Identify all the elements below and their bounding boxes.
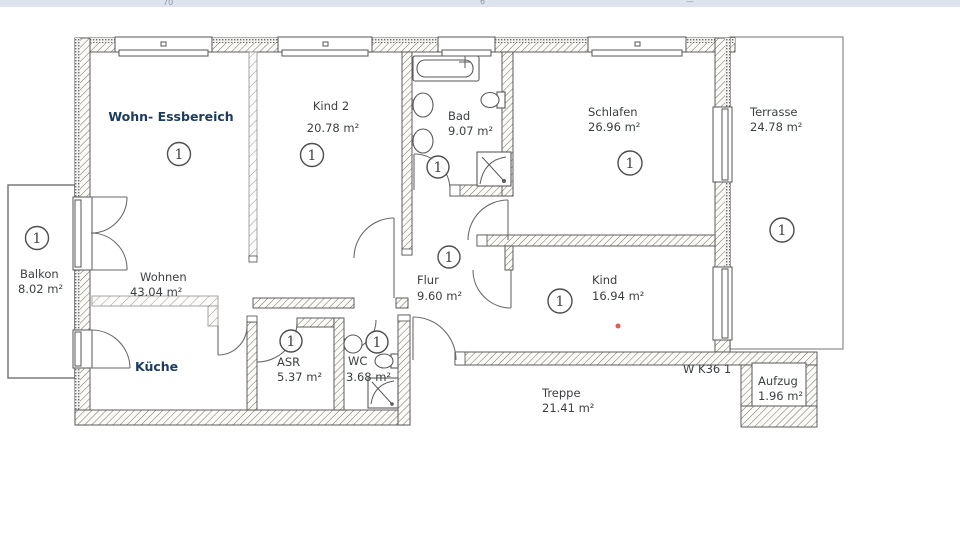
position-marker: 1 (280, 330, 302, 352)
room-area-treppe: 21.41 m² (542, 401, 594, 415)
sink-icon (412, 129, 433, 153)
wall-end-cap (249, 256, 257, 262)
wall-segment (297, 318, 334, 327)
room-label-balkon: Balkon (20, 267, 59, 281)
partition-wall (249, 52, 257, 258)
room-area-kind2: 20.78 m² (307, 121, 359, 135)
wall-end-cap (402, 249, 412, 255)
position-marker: 1 (168, 143, 191, 166)
svg-text:1: 1 (373, 335, 382, 351)
svg-text:1: 1 (175, 147, 184, 163)
room-label-bad: Bad (448, 109, 470, 123)
room-label-kueche: Küche (135, 359, 178, 374)
room-area-bad: 9.07 m² (448, 124, 493, 138)
room-label-wc: WC (348, 354, 367, 368)
insulation-band (75, 38, 80, 197)
top-fragment: 6 (480, 0, 485, 6)
room-label-terrasse: Terrasse (749, 105, 798, 119)
entry-door (413, 317, 456, 360)
insulation-band (725, 182, 730, 267)
floor-plan-drawing: 70 6 — (0, 0, 960, 542)
toilet-icon (481, 92, 505, 108)
top-fragment: 70 (163, 0, 173, 7)
wall-segment (402, 52, 412, 255)
room-area-schlafen: 26.96 m² (588, 120, 640, 134)
floor-plan-page: 70 6 — (0, 0, 960, 542)
insulation-band (372, 38, 438, 43)
position-marker: 1 (438, 246, 460, 268)
window-icon (278, 37, 372, 56)
svg-text:1: 1 (434, 160, 443, 176)
room-area-wohnen: 43.04 m² (130, 285, 182, 299)
svg-text:1: 1 (556, 294, 565, 310)
svg-text:1: 1 (626, 156, 635, 172)
wall-segment (806, 365, 817, 406)
wall-segment (75, 410, 410, 425)
room-label-aufzug: Aufzug (758, 374, 798, 388)
room-label-kind2: Kind 2 (313, 99, 349, 113)
window-icon (588, 37, 686, 56)
terrace-door-opening (713, 107, 732, 182)
room-area-aufzug: 1.96 m² (758, 389, 803, 403)
balcony-door-opening (73, 197, 92, 270)
position-marker: 1 (26, 227, 49, 250)
wall-segment (741, 365, 752, 406)
wall-segment (398, 315, 410, 425)
kueche-door (218, 326, 247, 355)
unit-number-label: W K36 1 (683, 362, 731, 376)
sink-icon (344, 335, 362, 353)
toilet-icon (375, 354, 398, 368)
insulation-band (725, 38, 730, 107)
position-marker: 1 (427, 156, 449, 178)
position-marker: 1 (301, 144, 324, 167)
room-area-wc: 3.68 m² (346, 370, 391, 384)
kind-door (473, 270, 511, 308)
kitchen-balcony-door-opening (73, 330, 92, 368)
insulation-band (75, 270, 80, 330)
wall-segment (715, 340, 730, 352)
wall-end-cap (450, 185, 460, 196)
room-label-flur: Flur (417, 273, 439, 287)
kitchen-balcony-door (91, 330, 130, 368)
wall-segment (505, 246, 513, 270)
svg-text:1: 1 (33, 231, 42, 247)
red-annotation-dot (616, 324, 621, 329)
room-area-terrasse: 24.78 m² (750, 120, 802, 134)
position-marker: 1 (618, 151, 642, 175)
schlafen-door (468, 200, 508, 240)
bathtub-icon (413, 56, 479, 81)
wall-segment (741, 406, 817, 427)
window-icon (438, 37, 495, 56)
terrace-outline (730, 37, 843, 349)
terrace-window-opening (713, 267, 732, 340)
svg-text:1: 1 (778, 223, 787, 239)
room-area-flur: 9.60 m² (417, 289, 462, 303)
wall-end-cap (398, 315, 410, 321)
wall-end-cap (477, 235, 487, 246)
insulation-band (495, 38, 588, 43)
wall-segment (477, 235, 715, 246)
position-marker: 1 (770, 218, 794, 242)
room-label-schlafen: Schlafen (588, 105, 638, 119)
wall-end-cap (247, 316, 257, 322)
kitchen-counter-partition (208, 306, 218, 326)
insulation-band (212, 38, 278, 43)
shower-icon (477, 152, 511, 186)
svg-text:1: 1 (308, 148, 317, 164)
room-label-wohn-essbereich: Wohn- Essbereich (108, 109, 233, 124)
balcony-french-door (91, 197, 127, 270)
top-fragment: — (686, 0, 694, 6)
position-marker: 1 (366, 331, 388, 353)
room-area-balkon: 8.02 m² (18, 282, 63, 296)
wall-segment (253, 298, 354, 308)
room-area-asr: 5.37 m² (277, 370, 322, 384)
room-label-treppe: Treppe (541, 386, 581, 400)
wall-segment (396, 298, 408, 308)
room-area-kind: 16.94 m² (592, 289, 644, 303)
window-icon (115, 37, 212, 56)
kind2-door (354, 218, 394, 298)
wall-segment (334, 318, 344, 410)
room-label-asr: ASR (277, 355, 300, 369)
room-label-kind: Kind (592, 273, 617, 287)
svg-text:1: 1 (287, 334, 296, 350)
wall-segment (247, 322, 257, 410)
position-marker: 1 (548, 289, 572, 313)
svg-text:1: 1 (445, 250, 454, 266)
sink-icon (412, 93, 433, 117)
room-label-wohnen: Wohnen (140, 270, 187, 284)
